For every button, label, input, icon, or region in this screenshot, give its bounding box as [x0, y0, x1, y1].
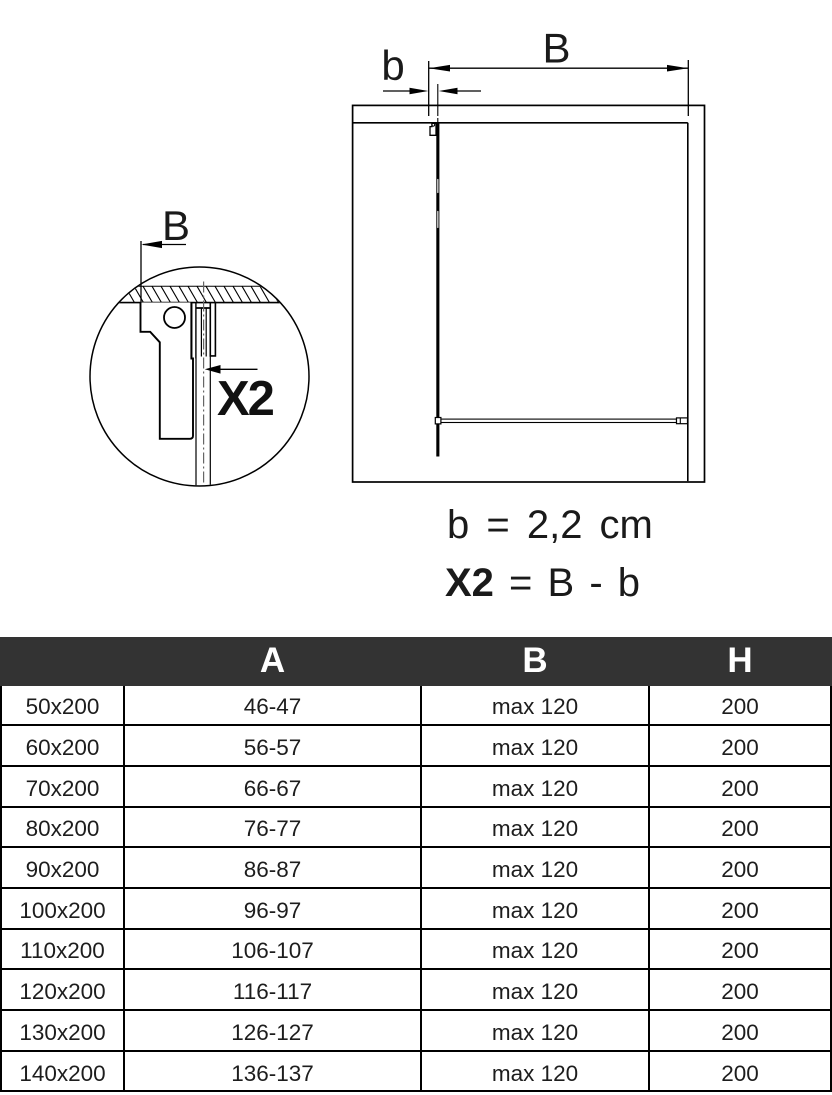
svg-text:B: B — [162, 202, 190, 249]
svg-text:X2: X2 — [217, 372, 274, 426]
svg-text:b: b — [381, 42, 404, 89]
svg-text:B: B — [542, 25, 570, 72]
svg-text:b = 2,2 cm: b = 2,2 cm — [447, 503, 653, 547]
svg-text:X2 = B - b: X2 = B - b — [445, 561, 640, 605]
